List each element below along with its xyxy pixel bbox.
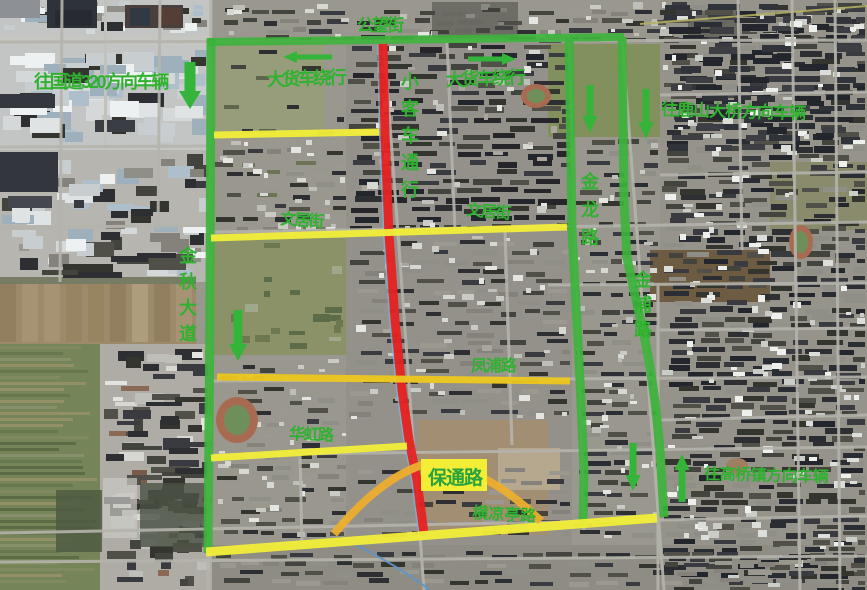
svg-text:秋: 秋 — [179, 271, 198, 292]
svg-text:路: 路 — [634, 319, 653, 340]
svg-text:行: 行 — [400, 179, 419, 200]
svg-text:金: 金 — [178, 245, 198, 266]
svg-text:道: 道 — [179, 323, 197, 344]
svg-text:金: 金 — [580, 171, 600, 192]
svg-text:客: 客 — [401, 98, 420, 119]
svg-text:往国道320方向车辆: 往国道320方向车辆 — [34, 71, 169, 92]
svg-text:路: 路 — [581, 227, 600, 248]
svg-text:大货车绕行: 大货车绕行 — [445, 66, 526, 90]
svg-text:公望街: 公望街 — [357, 15, 404, 35]
svg-text:往鹿山大桥方向车辆: 往鹿山大桥方向车辆 — [661, 99, 807, 123]
svg-text:浦: 浦 — [634, 294, 652, 315]
svg-text:大: 大 — [179, 297, 197, 318]
svg-text:车: 车 — [401, 125, 419, 146]
svg-text:小: 小 — [401, 72, 419, 92]
svg-text:通: 通 — [401, 153, 419, 173]
svg-text:龙: 龙 — [581, 199, 599, 220]
svg-text:金: 金 — [633, 269, 653, 290]
svg-text:保通路: 保通路 — [427, 466, 484, 489]
svg-text:大货车绕行: 大货车绕行 — [266, 66, 347, 90]
svg-text:华虹路: 华虹路 — [289, 424, 335, 445]
svg-text:凤浦路: 凤浦路 — [471, 356, 518, 375]
